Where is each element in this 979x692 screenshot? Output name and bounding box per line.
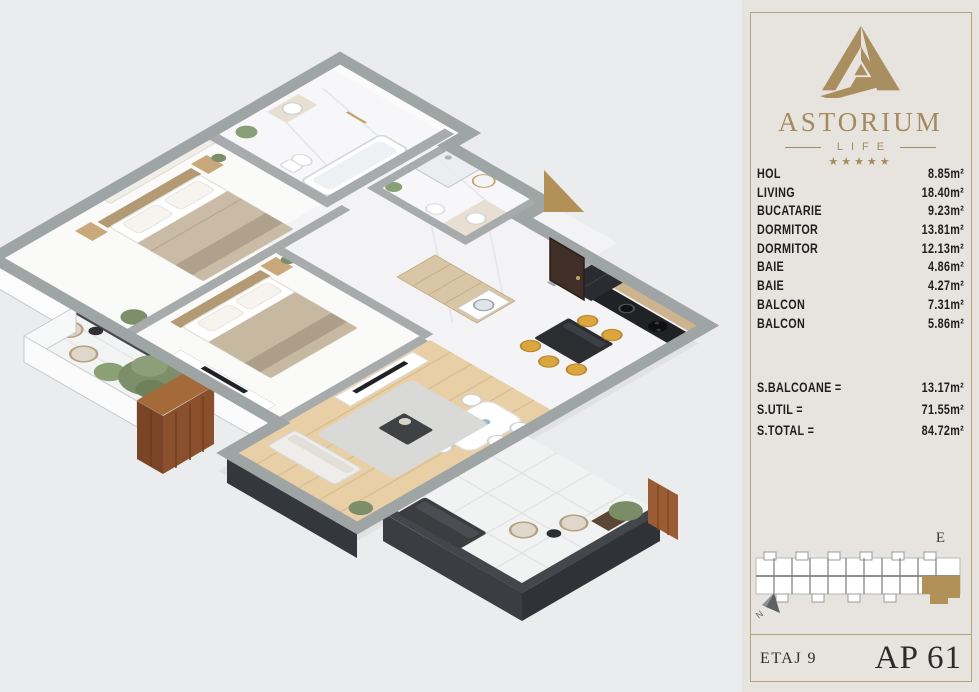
- room-area: 18.40m²: [922, 185, 964, 200]
- total-label: S.BALCOANE =: [757, 380, 842, 395]
- room-name: BUCATARIE: [757, 203, 822, 218]
- room-name: BAIE: [757, 278, 784, 293]
- astorium-logo-icon: [818, 22, 904, 98]
- total-label: S.UTIL =: [757, 402, 803, 417]
- total-value: 71.55m²: [922, 402, 964, 417]
- total-row: S.BALCOANE =13.17m²: [757, 380, 964, 402]
- entrance-arrow-icon: [544, 170, 584, 212]
- room-area-list: HOL8.85m² LIVING18.40m² BUCATARIE9.23m² …: [757, 166, 964, 334]
- apartment-id-row: ETAJ 9 AP 61: [750, 634, 972, 682]
- room-name: BALCON: [757, 316, 805, 331]
- room-area: 5.86m²: [928, 316, 964, 331]
- floor-plan-svg: [0, 0, 742, 692]
- brand-subtitle: LIFE: [742, 141, 979, 153]
- room-row: HOL8.85m²: [757, 166, 964, 185]
- room-name: BALCON: [757, 297, 805, 312]
- total-label: S.TOTAL =: [757, 423, 814, 438]
- total-row: S.UTIL =71.55m²: [757, 402, 964, 424]
- room-area: 7.31m²: [928, 297, 964, 312]
- total-value: 13.17m²: [922, 380, 964, 395]
- room-row: BAIE4.86m²: [757, 259, 964, 278]
- room-area: 12.13m²: [922, 241, 964, 256]
- room-row: BALCON7.31m²: [757, 297, 964, 316]
- room-name: LIVING: [757, 185, 795, 200]
- room-row: LIVING18.40m²: [757, 185, 964, 204]
- room-row: BAIE4.27m²: [757, 278, 964, 297]
- room-row: BUCATARIE9.23m²: [757, 203, 964, 222]
- total-row: S.TOTAL =84.72m²: [757, 423, 964, 445]
- building-key-plan: E: [752, 516, 969, 622]
- room-area: 9.23m²: [928, 203, 964, 218]
- apartment-number: AP 61: [875, 640, 962, 677]
- highlighted-apartment: [922, 576, 960, 604]
- room-row: DORMITOR13.81m²: [757, 222, 964, 241]
- room-name: HOL: [757, 166, 781, 181]
- totals-list: S.BALCOANE =13.17m² S.UTIL =71.55m² S.TO…: [757, 380, 964, 445]
- room-row: BALCON5.86m²: [757, 316, 964, 335]
- info-panel: ASTORIUM LIFE ★★★★★ HOL8.85m² LIVING18.4…: [742, 0, 979, 692]
- floor-label: ETAJ 9: [760, 650, 817, 668]
- room-name: DORMITOR: [757, 222, 818, 237]
- brochure-page: ASTORIUM LIFE ★★★★★ HOL8.85m² LIVING18.4…: [0, 0, 979, 692]
- north-arrow-icon: N: [754, 591, 788, 626]
- room-area: 13.81m²: [922, 222, 964, 237]
- brand-block: ASTORIUM LIFE ★★★★★: [742, 22, 979, 168]
- room-area: 4.86m²: [928, 259, 964, 274]
- room-area: 8.85m²: [928, 166, 964, 181]
- room-name: BAIE: [757, 259, 784, 274]
- room-area: 4.27m²: [928, 278, 964, 293]
- brand-name: ASTORIUM: [742, 107, 979, 138]
- svg-text:N: N: [754, 609, 765, 621]
- floor-plan-render: [0, 0, 742, 692]
- room-row: DORMITOR12.13m²: [757, 241, 964, 260]
- total-value: 84.72m²: [922, 423, 964, 438]
- room-name: DORMITOR: [757, 241, 818, 256]
